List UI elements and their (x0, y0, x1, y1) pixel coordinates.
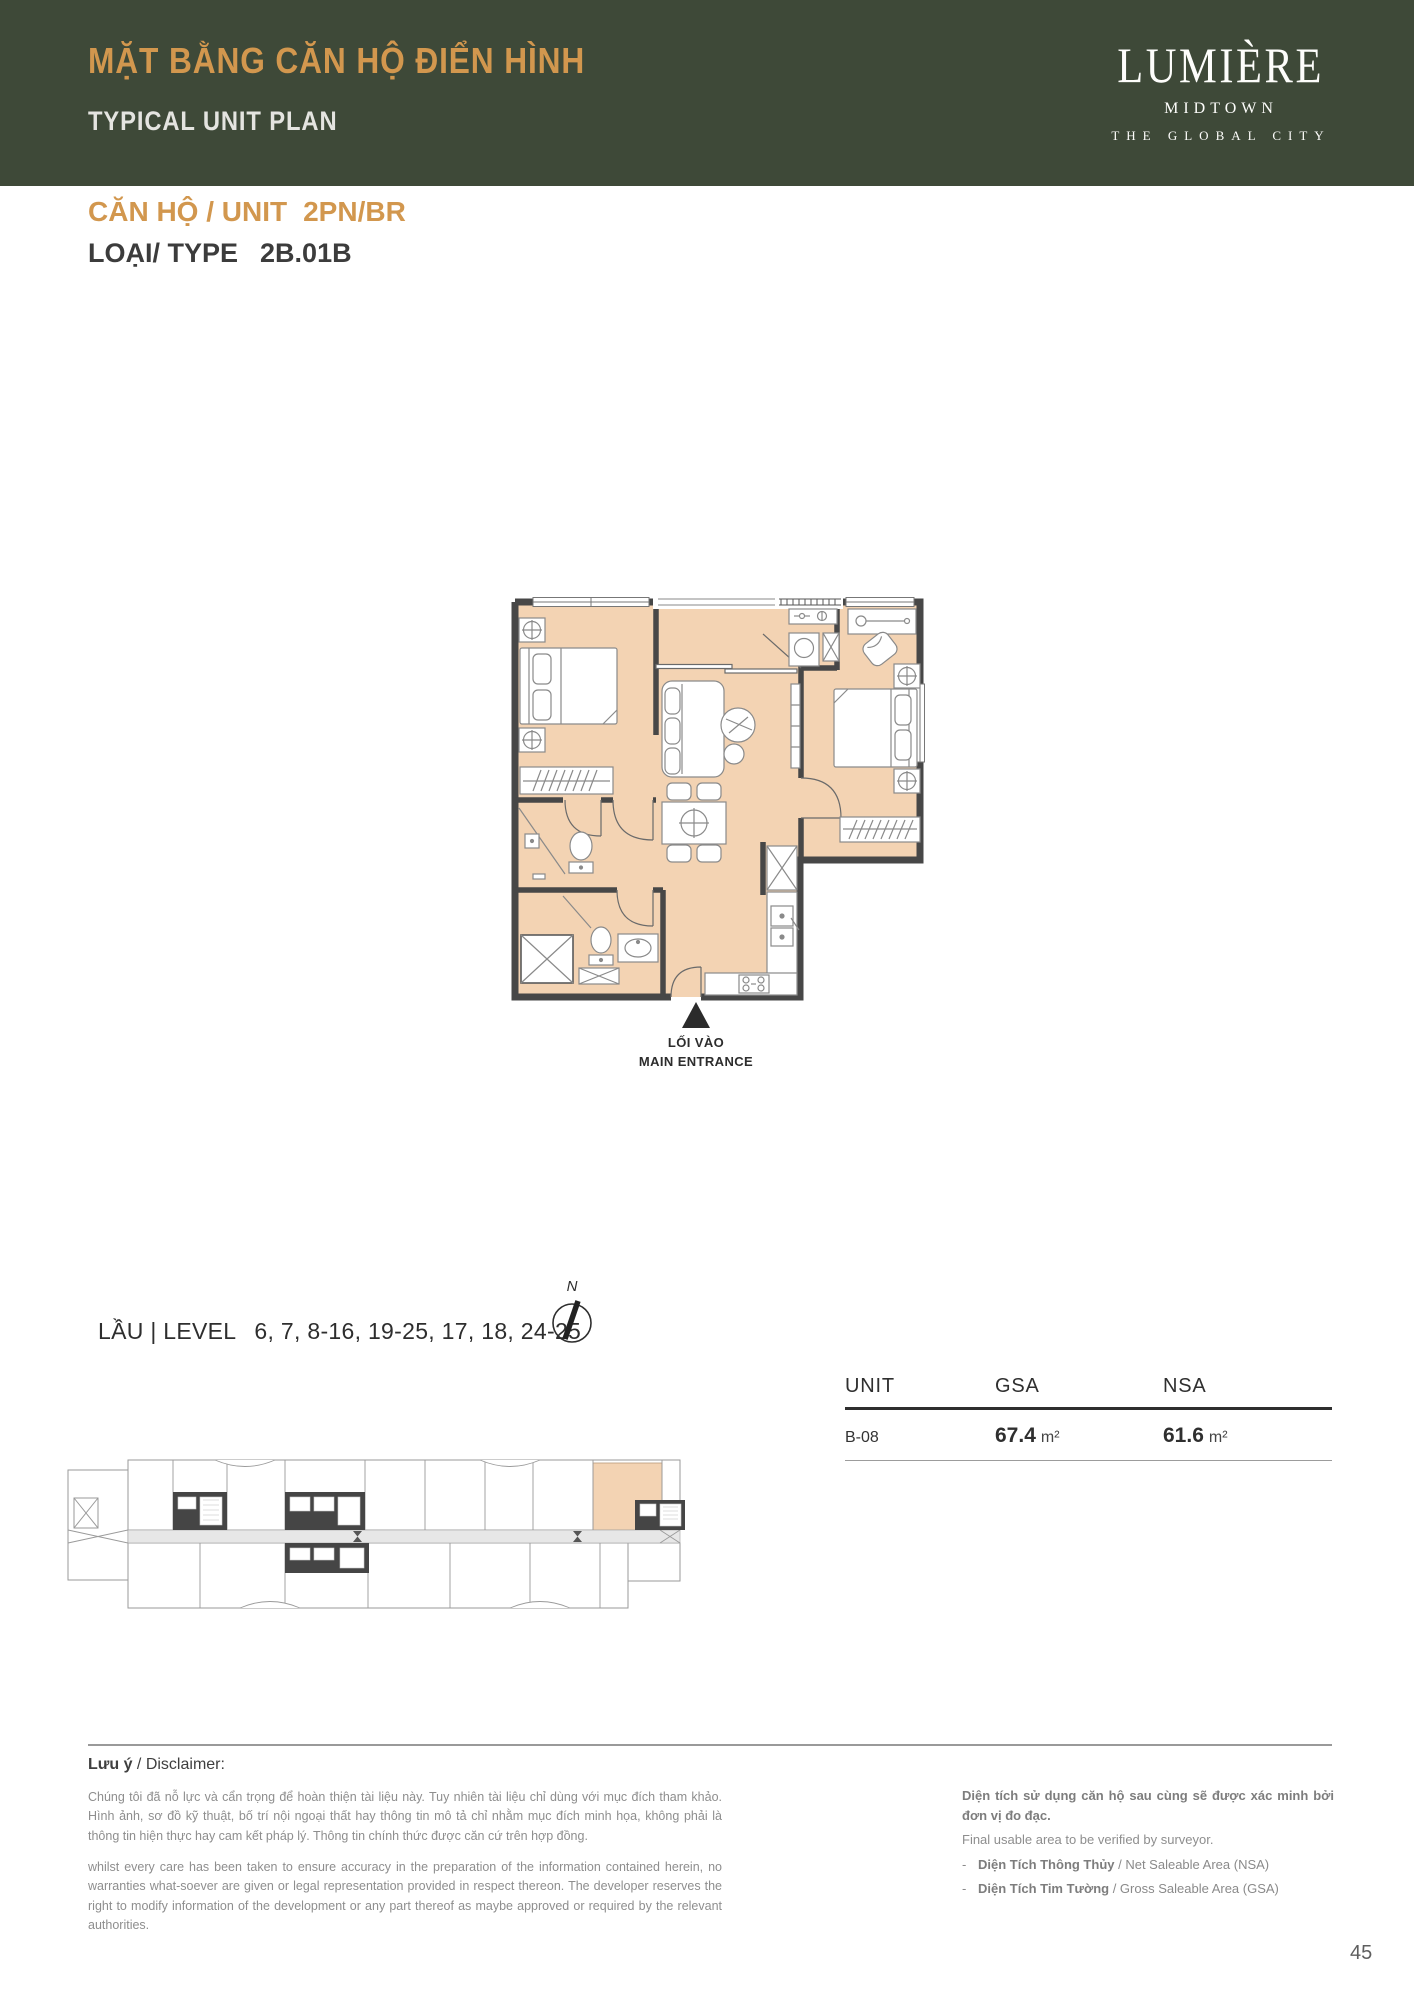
compass: N (548, 1278, 596, 1347)
compass-icon (548, 1295, 596, 1347)
entrance-label-en: MAIN ENTRANCE (606, 1053, 786, 1072)
header-bar: MẶT BẰNG CĂN HỘ ĐIỂN HÌNH TYPICAL UNIT P… (0, 0, 1414, 186)
table-rule-thick (845, 1407, 1332, 1410)
compass-north-label: N (548, 1278, 596, 1295)
level-label: LẦU | LEVEL (98, 1318, 236, 1344)
col-nsa: NSA (1163, 1375, 1332, 1398)
gsa-unit: m² (1041, 1429, 1060, 1446)
disclaimer-paragraph-vi: Chúng tôi đã nỗ lực và cẩn trọng để hoàn… (88, 1788, 722, 1846)
toilet-1 (570, 832, 592, 860)
area-notes: Diện tích sử dụng căn hộ sau cùng sẽ đượ… (962, 1786, 1334, 1899)
entrance-arrow-icon (682, 1002, 710, 1028)
note-vi: Diện tích sử dụng căn hộ sau cùng sẽ đượ… (962, 1786, 1334, 1825)
table-row: B-08 67.4m² 61.6m² (845, 1424, 1332, 1448)
corridor (128, 1530, 680, 1543)
gsa-value: 67.4 (995, 1424, 1036, 1447)
disclaimer-divider (88, 1744, 1332, 1746)
entrance-marker: LỐI VÀO MAIN ENTRANCE (606, 1002, 786, 1072)
unit-value: 2PN/BR (303, 196, 406, 227)
entrance-label-vi: LỐI VÀO (606, 1034, 786, 1053)
brand-name: LUMIÈRE (1118, 36, 1325, 94)
brochure-page: MẶT BẰNG CĂN HỘ ĐIỂN HÌNH TYPICAL UNIT P… (0, 0, 1414, 2000)
unit-code: B-08 (845, 1429, 995, 1447)
nsa-value: 61.6 (1163, 1424, 1204, 1447)
level-info: LẦU | LEVEL6, 7, 8-16, 19-25, 17, 18, 24… (98, 1318, 581, 1345)
disclaimer-paragraph-en: whilst every care has been taken to ensu… (88, 1858, 722, 1936)
page-title-vi: MẶT BẰNG CĂN HỘ ĐIỂN HÌNH (88, 40, 653, 82)
page-title-en: TYPICAL UNIT PLAN (88, 106, 372, 137)
note-bullet-nsa: - Diện Tích Thông Thủy / Net Saleable Ar… (962, 1856, 1334, 1875)
brand-subname: MIDTOWN (1075, 100, 1367, 118)
key-plan (60, 1430, 690, 1620)
utility-area (789, 609, 839, 666)
level-values: 6, 7, 8-16, 19-25, 17, 18, 24-25 (254, 1318, 581, 1344)
brand-logo: LUMIÈRE MIDTOWN THE GLOBAL CITY (1075, 36, 1367, 144)
brand-tagline: THE GLOBAL CITY (1075, 128, 1367, 144)
col-gsa: GSA (995, 1375, 1163, 1398)
type-label: LOẠI/ TYPE (88, 238, 238, 268)
nsa-unit: m² (1209, 1429, 1228, 1446)
page-number: 45 (1350, 1942, 1372, 1965)
note-bullet-gsa: - Diện Tích Tim Tường / Gross Saleable A… (962, 1880, 1334, 1899)
table-rule-thin (845, 1460, 1332, 1461)
unit-floor-plan (505, 578, 935, 1008)
note-en: Final usable area to be verified by surv… (962, 1830, 1334, 1850)
area-table: UNIT GSA NSA B-08 67.4m² 61.6m² (845, 1375, 1332, 1461)
unit-info-line: CĂN HỘ / UNIT2PN/BR (88, 196, 406, 228)
type-value: 2B.01B (260, 238, 352, 268)
area-table-header: UNIT GSA NSA (845, 1375, 1332, 1398)
type-info-line: LOẠI/ TYPE2B.01B (88, 238, 352, 269)
toilet-2 (591, 927, 611, 953)
disclaimer-heading: Lưu ý / Disclaimer: (88, 1756, 225, 1774)
col-unit: UNIT (845, 1375, 995, 1398)
unit-label: CĂN HỘ / UNIT (88, 196, 287, 227)
